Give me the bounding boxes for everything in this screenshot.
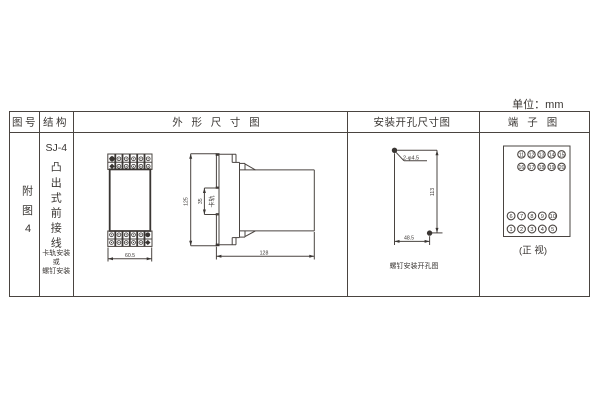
- svg-text:螺钉安装开孔图: 螺钉安装开孔图: [390, 261, 439, 270]
- svg-text:9: 9: [541, 214, 544, 220]
- svg-text:12: 12: [529, 152, 535, 158]
- svg-text:图号: 图号: [12, 117, 38, 129]
- svg-text:卡轨安装: 卡轨安装: [42, 248, 70, 257]
- svg-text:外形尺寸图: 外形尺寸图: [172, 116, 268, 129]
- svg-text:60.5: 60.5: [125, 253, 135, 259]
- svg-text:7: 7: [520, 214, 523, 220]
- svg-text:单位：mm: 单位：mm: [512, 97, 563, 111]
- svg-text:35: 35: [198, 198, 204, 204]
- svg-text:图: 图: [22, 204, 33, 217]
- svg-text:3: 3: [530, 227, 533, 233]
- svg-text:凸: 凸: [51, 162, 62, 174]
- svg-text:20: 20: [559, 165, 565, 171]
- svg-text:48.5: 48.5: [404, 236, 414, 242]
- svg-text:式: 式: [51, 192, 62, 205]
- svg-text:前: 前: [51, 206, 62, 220]
- svg-text:15: 15: [559, 152, 565, 158]
- svg-text:2: 2: [520, 227, 523, 233]
- svg-text:线: 线: [51, 236, 62, 250]
- svg-text:10: 10: [550, 214, 556, 220]
- svg-text:17: 17: [529, 165, 535, 171]
- svg-text:113: 113: [430, 188, 436, 196]
- svg-text:6: 6: [510, 214, 513, 220]
- svg-text:4: 4: [541, 227, 544, 233]
- svg-text:接: 接: [51, 222, 62, 235]
- svg-text:结构: 结构: [43, 116, 69, 129]
- svg-text:19: 19: [549, 165, 555, 171]
- svg-text:(正 视): (正 视): [519, 245, 547, 257]
- svg-text:2-φ4.5: 2-φ4.5: [403, 155, 419, 161]
- svg-text:出: 出: [51, 176, 62, 190]
- svg-text:125: 125: [184, 197, 190, 206]
- svg-text:卡轨: 卡轨: [208, 195, 216, 207]
- svg-text:4: 4: [25, 223, 31, 235]
- svg-text:16: 16: [519, 165, 525, 171]
- svg-text:附: 附: [22, 184, 33, 198]
- svg-text:或: 或: [53, 257, 60, 266]
- svg-text:18: 18: [539, 165, 545, 171]
- svg-text:SJ-4: SJ-4: [46, 142, 68, 154]
- svg-text:8: 8: [530, 214, 533, 220]
- svg-text:5: 5: [551, 227, 554, 233]
- svg-text:11: 11: [519, 152, 524, 158]
- svg-text:安装开孔尺寸图: 安装开孔尺寸图: [374, 116, 451, 129]
- svg-text:128: 128: [260, 250, 269, 256]
- svg-text:14: 14: [549, 152, 555, 158]
- svg-text:13: 13: [539, 152, 545, 158]
- svg-text:1: 1: [510, 227, 513, 233]
- svg-text:螺钉安装: 螺钉安装: [42, 266, 70, 275]
- svg-text:端子图: 端子图: [508, 116, 567, 129]
